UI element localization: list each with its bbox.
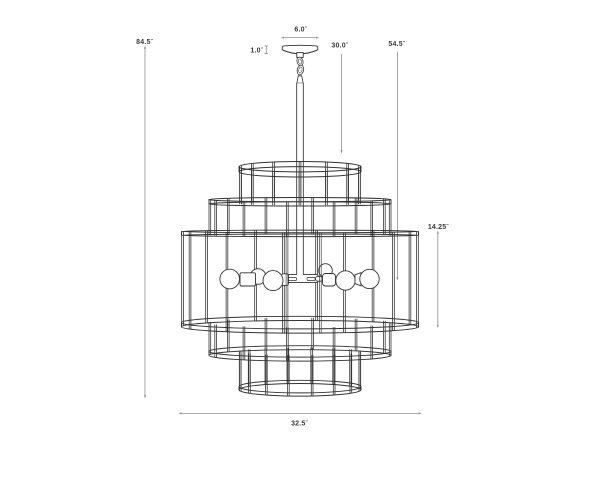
svg-text:14.25″: 14.25″ [428, 223, 450, 231]
